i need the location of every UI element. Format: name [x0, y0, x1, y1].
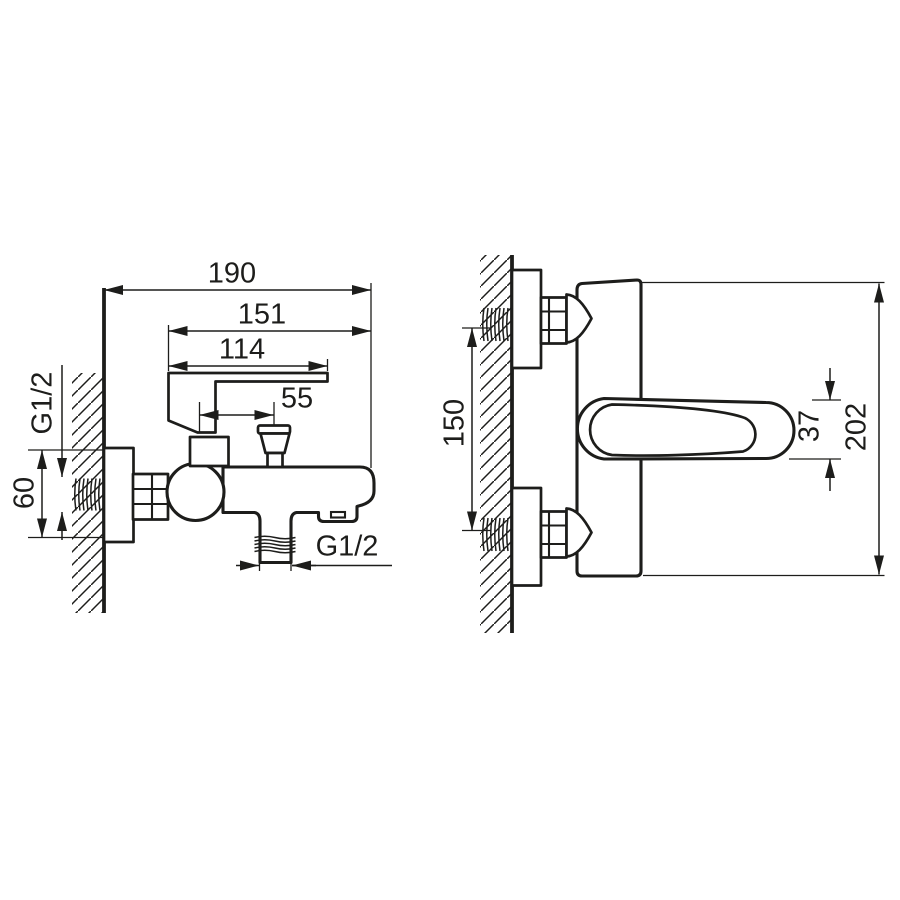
dim-label-overall-width: 190: [208, 260, 256, 289]
front-view: [462, 255, 885, 633]
nut-top: [541, 298, 567, 344]
valve-body-circle: [167, 464, 224, 521]
mounting-nut: [133, 474, 168, 520]
dim-label-handle-thickness: 37: [796, 410, 825, 442]
diverter-knob-body: [261, 434, 290, 454]
escutcheon-bottom: [512, 488, 541, 586]
cartridge-collar: [190, 437, 229, 466]
escutcheon-top: [512, 270, 541, 368]
dim-label-diverter-offset: 55: [281, 385, 313, 414]
dim-label-handle-width: 114: [219, 336, 265, 365]
dim-label-wall-thread: G1/2: [29, 372, 58, 435]
dim-label-outlet-thread: G1/2: [316, 533, 379, 562]
dim-label-plate-height: 60: [11, 477, 40, 509]
dim-label-overall-height: 202: [843, 403, 872, 451]
side-view: [28, 283, 392, 613]
escutcheon-plate: [104, 448, 134, 542]
technical-drawing-canvas: 190 151 114 55 G1/2 G1/2 60 150 37 202: [0, 0, 900, 900]
nut-bottom: [541, 512, 567, 558]
dim-label-hole-spacing: 150: [441, 399, 470, 447]
diverter-knob-stem: [268, 453, 283, 467]
dim-label-upper-width: 151: [238, 301, 286, 330]
drawing-linework: [0, 0, 900, 900]
